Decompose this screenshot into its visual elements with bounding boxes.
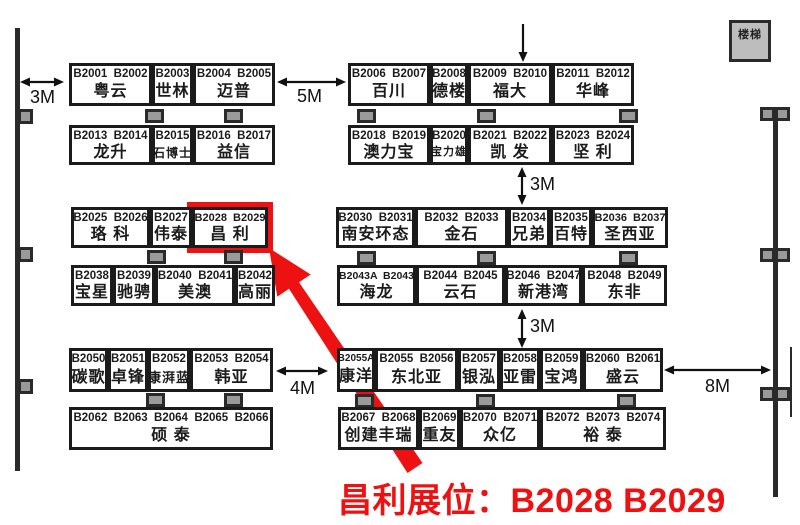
booth-row: B2050碳歌B2051卓锋B2052康湃蓝B2053 B2054韩亚: [69, 348, 273, 392]
highlight-caption: 昌利展位：B2028 B2029: [338, 473, 726, 522]
booth-numbers: B2008: [432, 68, 466, 81]
booth-b2018-b2019: B2018 B2019澳力宝: [348, 125, 430, 165]
booth-name: 宝星: [75, 283, 109, 303]
wall: [773, 108, 778, 497]
pillar: [18, 109, 33, 124]
booth-name: 华峰: [576, 81, 610, 103]
booth-row: B2013 B2014龙升B2015石博士B2016 B2017益信: [69, 125, 275, 165]
measure-arrow-3m: [518, 167, 527, 205]
booth-row: B2067 B2068创建丰瑞B2069重友B2070 B2071众亿B2072…: [338, 407, 666, 450]
booth-b2001-b2002: B2001 B2002粤云: [69, 63, 152, 106]
booth-b2048-b2049: B2048 B2049东非: [582, 265, 667, 306]
booth-name: 世林: [155, 81, 189, 103]
booth-numbers: B2044 B2045: [423, 270, 497, 283]
measure-arrow-entrance: [519, 24, 528, 62]
booth-row: B2030 B2031南安环态B2032 B2033金石B2034兄弟B2035…: [336, 207, 668, 248]
measure-label-3m: 3M: [30, 87, 55, 108]
booth-numbers: B2027: [154, 212, 188, 225]
booth-name: 福大: [493, 81, 527, 103]
booth-b2003: B2003世林: [152, 63, 193, 106]
booth-name: 圣西亚: [604, 225, 655, 245]
pillar: [760, 387, 775, 401]
booth-b2035: B2035百特: [550, 207, 592, 248]
pillar: [775, 387, 790, 401]
booth-numbers: B2021 B2022: [473, 130, 547, 143]
booth-b2059: B2059宝鸿: [540, 348, 583, 392]
booth-name: 重友: [422, 425, 456, 447]
pillar: [355, 394, 374, 408]
booth-row: B2038宝星B2039驰骋B2040 B2041美澳B2042高丽: [71, 265, 275, 306]
booth-numbers: B2042: [238, 270, 272, 283]
booth-row: B2043A B2043海龙B2044 B2045云石B2046 B2047新港…: [337, 265, 667, 306]
measure-label-8m: 8M: [705, 376, 730, 397]
booth-b2028-b2029: B2028 B2029昌 利: [192, 207, 268, 248]
pillar: [760, 107, 775, 121]
booth-b2053-b2054: B2053 B2054韩亚: [190, 348, 273, 392]
booth-name: 昌 利: [210, 225, 249, 245]
booth-b2043a-b2043: B2043A B2043海龙: [337, 265, 416, 306]
booth-name: 众亿: [483, 425, 517, 447]
pillar: [619, 109, 638, 123]
measure-label-5m: 5M: [297, 86, 322, 107]
booth-name: 东非: [607, 283, 641, 303]
booth-numbers: B2035: [554, 212, 588, 225]
booth-b2050: B2050碳歌: [69, 348, 108, 392]
booth-name: 迈普: [217, 81, 251, 103]
booth-numbers: B2003: [156, 68, 190, 81]
booth-b2036-b2037: B2036 B2037圣西亚: [592, 207, 668, 248]
booth-numbers: B2055 B2056: [379, 353, 453, 366]
booth-name: 卓锋: [111, 366, 145, 389]
booth-name: 龙升: [93, 143, 127, 162]
booth-row: B2006 B2007百川B2008德楼B2009 B2010福大B2011 B…: [348, 63, 634, 106]
booth-name: 硕 泰: [151, 425, 190, 447]
booth-b2069: B2069重友: [419, 407, 460, 450]
booth-b2070-b2071: B2070 B2071众亿: [460, 407, 540, 450]
booth-b2020: B2020宝力雄: [430, 125, 468, 165]
booth-name: 驰骋: [117, 283, 151, 303]
pillar: [147, 250, 166, 264]
booth-b2044-b2045: B2044 B2045云石: [416, 265, 505, 306]
booth-numbers: B2034: [512, 212, 546, 225]
booth-numbers: B2040 B2041: [158, 270, 232, 283]
booth-name: 碳歌: [72, 366, 106, 389]
booth-numbers: B2013 B2014: [73, 130, 147, 143]
booth-numbers: B2043A B2043: [339, 270, 414, 282]
pillar: [224, 393, 243, 407]
booth-numbers: B2028 B2029: [195, 212, 266, 225]
pillar: [775, 107, 790, 121]
booth-b2009-b2010: B2009 B2010福大: [468, 63, 552, 106]
booth-numbers: B2011 B2012: [556, 68, 630, 81]
booth-b2030-b2031: B2030 B2031南安环态: [336, 207, 415, 248]
booth-name: 德楼: [432, 81, 466, 103]
booth-b2021-b2022: B2021 B2022凯 发: [468, 125, 552, 165]
booth-name: 韩亚: [214, 366, 248, 389]
booth-b2058: B2058亚雷: [500, 348, 540, 392]
booth-numbers: B2052: [152, 353, 186, 366]
booth-b2023-b2024: B2023 B2024坚 利: [552, 125, 634, 165]
booth-name: 石博士: [153, 143, 192, 162]
booth-name: 云石: [443, 283, 477, 303]
booth-b2055-b2056: B2055 B2056东北亚: [375, 348, 458, 392]
booth-numbers: B2060 B2061: [586, 353, 660, 366]
booth-numbers: B2051: [111, 353, 145, 366]
measure-arrow-4m: [276, 367, 328, 376]
booth-name: 益信: [217, 143, 251, 162]
stairs-label: 楼梯: [738, 29, 762, 41]
booth-numbers: B2055A: [338, 353, 375, 365]
booth-row: B2055A康洋B2055 B2056东北亚B2057银泓B2058亚雷B205…: [337, 348, 663, 392]
booth-name: 百川: [372, 81, 406, 103]
booth-name: 宝鸿: [544, 366, 578, 389]
floor-plan: 楼梯 昌利展位：B2028 B2029 B2001 B2002粤云B2003世林…: [0, 0, 800, 525]
booth-b2060-b2061: B2060 B2061盛云: [583, 348, 663, 392]
pillar: [145, 109, 164, 123]
booth-name: 南安环态: [341, 225, 409, 245]
booth-name: 裕 泰: [583, 425, 622, 447]
booth-name: 凯 发: [490, 143, 529, 162]
booth-numbers: B2069: [423, 412, 457, 425]
booth-b2013-b2014: B2013 B2014龙升: [69, 125, 152, 165]
pillar: [760, 248, 775, 262]
booth-b2016-b2017: B2016 B2017益信: [193, 125, 275, 165]
booth-numbers: B2050: [72, 353, 106, 366]
booth-numbers: B2015: [156, 130, 190, 143]
booth-numbers: B2070 B2071: [463, 412, 537, 425]
booth-numbers: B2030 B2031: [338, 212, 412, 225]
booth-name: 亚雷: [503, 366, 537, 389]
pillar: [477, 251, 496, 265]
booth-name: 澳力宝: [363, 143, 414, 162]
pillar: [477, 109, 496, 123]
measure-arrow-3m: [518, 309, 527, 348]
booth-b2062-b2063-b2064-b2065-b2066: B2062 B2063 B2064 B2065 B2066硕 泰: [69, 407, 273, 450]
booth-name: 宝力雄: [431, 143, 467, 162]
pillar: [224, 250, 243, 264]
booth-b2015: B2015石博士: [152, 125, 193, 165]
wall: [790, 347, 792, 417]
pillar: [18, 247, 33, 262]
booth-name: 粤云: [93, 81, 127, 103]
booth-numbers: B2048 B2049: [587, 270, 661, 283]
booth-numbers: B2020: [432, 130, 466, 143]
booth-b2027: B2027伟泰: [150, 207, 192, 248]
booth-numbers: B2059: [545, 353, 579, 366]
booth-name: 兄弟: [512, 225, 546, 245]
booth-numbers: B2006 B2007: [352, 68, 426, 81]
booth-numbers: B2038: [75, 270, 109, 283]
booth-numbers: B2046 B2047: [506, 270, 580, 283]
booth-b2051: B2051卓锋: [108, 348, 148, 392]
booth-row: B2001 B2002粤云B2003世林B2004 B2005迈普: [69, 63, 275, 106]
booth-numbers: B2057: [462, 353, 496, 366]
booth-b2032-b2033: B2032 B2033金石: [415, 207, 508, 248]
booth-row: B2062 B2063 B2064 B2065 B2066硕 泰: [69, 407, 273, 450]
booth-numbers: B2067 B2068: [341, 412, 415, 425]
pillar: [617, 394, 636, 408]
measure-arrow-3m: [20, 78, 64, 87]
booth-name: 伟泰: [154, 225, 188, 245]
booth-numbers: B2001 B2002: [73, 68, 147, 81]
booth-b2025-b2026: B2025 B2026珞 科: [71, 207, 150, 248]
booth-name: 美澳: [178, 283, 212, 303]
booth-b2040-b2041: B2040 B2041美澳: [155, 265, 235, 306]
booth-b2055a: B2055A康洋: [337, 348, 375, 392]
booth-b2034: B2034兄弟: [508, 207, 550, 248]
pillar: [619, 251, 638, 265]
booth-numbers: B2053 B2054: [194, 353, 268, 366]
booth-name: 新港湾: [518, 283, 569, 303]
booth-b2038: B2038宝星: [71, 265, 113, 306]
booth-numbers: B2009 B2010: [473, 68, 547, 81]
measure-arrow-8m: [664, 366, 771, 375]
booth-numbers: B2039: [117, 270, 151, 283]
booth-b2052: B2052康湃蓝: [148, 348, 190, 392]
booth-name: 东北亚: [391, 366, 442, 389]
booth-numbers: B2025 B2026: [73, 212, 147, 225]
booth-row: B2025 B2026珞 科B2027伟泰B2028 B2029昌 利: [71, 207, 268, 248]
booth-b2072-b2073-b2074: B2072 B2073 B2074裕 泰: [540, 407, 666, 450]
booth-numbers: B2036 B2037: [595, 212, 666, 225]
pillar: [224, 109, 243, 123]
booth-name: 康洋: [339, 365, 373, 390]
booth-b2046-b2047: B2046 B2047新港湾: [505, 265, 582, 306]
booth-name: 珞 科: [91, 225, 130, 245]
booth-b2042: B2042高丽: [235, 265, 275, 306]
booth-b2011-b2012: B2011 B2012华峰: [552, 63, 634, 106]
measure-label-4m: 4M: [290, 378, 315, 399]
pillar: [18, 379, 33, 394]
booth-name: 创建丰瑞: [344, 425, 412, 447]
measure-label-3m: 3M: [530, 316, 555, 337]
booth-b2008: B2008德楼: [430, 63, 468, 106]
booth-name: 银泓: [462, 366, 496, 389]
stairs-box: 楼梯: [729, 20, 771, 62]
booth-numbers: B2018 B2019: [352, 130, 426, 143]
booth-numbers: B2004 B2005: [197, 68, 271, 81]
booth-b2006-b2007: B2006 B2007百川: [348, 63, 430, 106]
booth-numbers: B2032 B2033: [424, 212, 498, 225]
booth-name: 盛云: [606, 366, 640, 389]
booth-name: 康湃蓝: [148, 366, 190, 389]
pillar: [476, 394, 495, 408]
booth-b2039: B2039驰骋: [113, 265, 155, 306]
booth-name: 高丽: [238, 283, 272, 303]
booth-b2004-b2005: B2004 B2005迈普: [193, 63, 275, 106]
pillar: [775, 248, 790, 262]
pillar: [357, 109, 376, 123]
measure-label-3m: 3M: [530, 174, 555, 195]
pillar: [357, 251, 376, 265]
booth-numbers: B2062 B2063 B2064 B2065 B2066: [73, 412, 268, 425]
pillar: [146, 393, 165, 407]
booth-name: 海龙: [359, 282, 393, 303]
booth-numbers: B2023 B2024: [556, 130, 630, 143]
booth-b2057: B2057银泓: [458, 348, 500, 392]
booth-row: B2018 B2019澳力宝B2020宝力雄B2021 B2022凯 发B202…: [348, 125, 634, 165]
booth-name: 金石: [444, 225, 478, 245]
booth-numbers: B2058: [503, 353, 537, 366]
booth-numbers: B2072 B2073 B2074: [546, 412, 660, 425]
booth-numbers: B2016 B2017: [197, 130, 271, 143]
booth-name: 坚 利: [573, 143, 612, 162]
booth-b2067-b2068: B2067 B2068创建丰瑞: [338, 407, 419, 450]
booth-name: 百特: [554, 225, 588, 245]
